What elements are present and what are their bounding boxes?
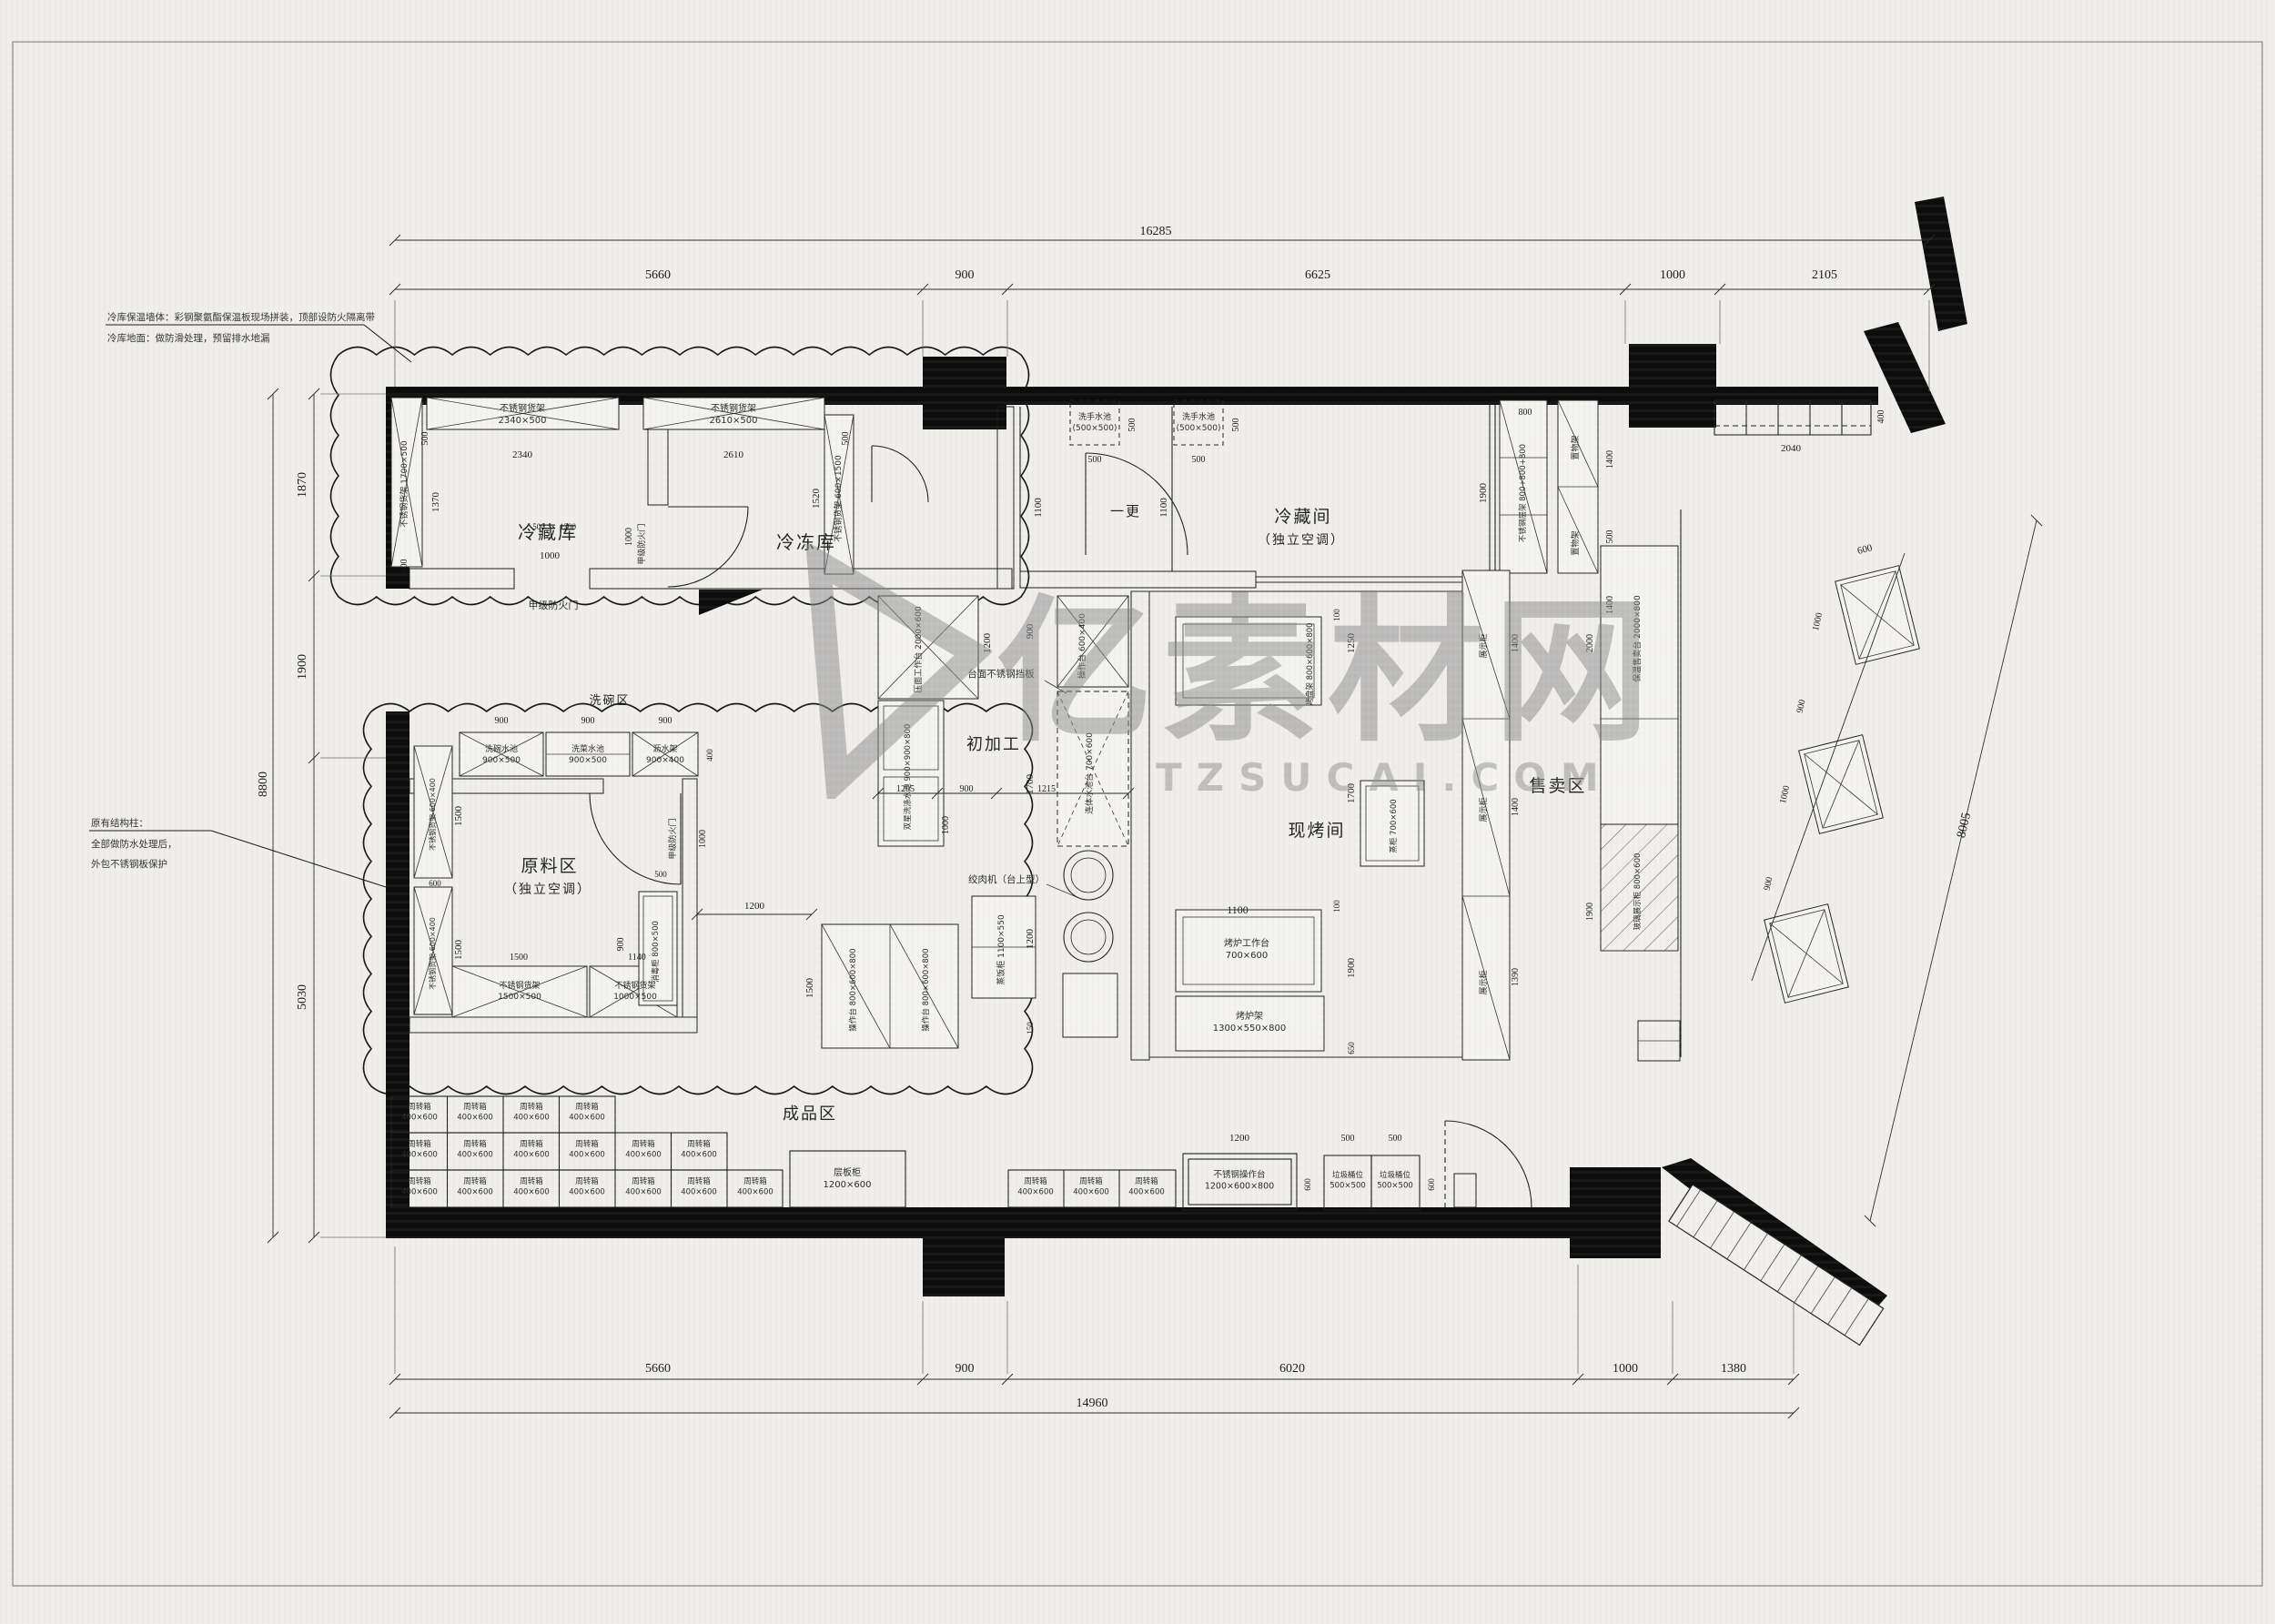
- dim-label: 2340: [512, 449, 533, 460]
- equipment-label: 置物架: [1570, 435, 1581, 459]
- dim-label: 900: [1763, 876, 1775, 892]
- dim-label: 8005: [1955, 812, 1974, 840]
- room-label: 初加工: [966, 735, 1021, 754]
- dim-label: 1400: [1605, 596, 1615, 614]
- column: [923, 1224, 1005, 1296]
- equipment-label: 周转箱400×600: [457, 1102, 493, 1123]
- dim-label: 1500: [804, 978, 815, 999]
- floor-plan-canvas: 1628556609006625100021055660900602010001…: [0, 0, 2275, 1624]
- room-label: 售卖区: [1529, 776, 1586, 796]
- dim-label: 1000: [1613, 1362, 1638, 1376]
- dim-label: 1700: [1025, 774, 1036, 795]
- dim-label: 500: [841, 432, 851, 446]
- room-label: 成品区: [783, 1105, 837, 1124]
- dim-label: 2040: [1781, 443, 1802, 454]
- dim-label: 400: [1876, 410, 1886, 424]
- dim-label: 600: [429, 879, 441, 888]
- equipment-label: 保温售卖台 2000×800: [1632, 595, 1643, 682]
- equipment-label: 洗手水池(500×500): [1177, 411, 1221, 433]
- dim-label: 900: [659, 716, 672, 726]
- equipment-label: 周转箱400×600: [1017, 1176, 1054, 1197]
- equipment-label: 甲级防火门: [529, 599, 579, 611]
- dim-label: 900: [960, 784, 974, 794]
- annotation-text: 外包不锈钢板保护: [91, 858, 167, 870]
- equipment-label: 层板柜1200×600: [824, 1166, 872, 1190]
- equipment-label: 烤盘架 800×600×800: [1305, 622, 1315, 705]
- equipment-label: 周转箱400×600: [457, 1139, 493, 1160]
- equipment-label: 压面工作台 2000×600: [913, 606, 924, 693]
- dim-label: 500: [420, 432, 430, 446]
- room-label: 冷藏间: [1274, 507, 1331, 527]
- dim-label: 500: [1088, 455, 1102, 465]
- dim-label: 1400: [1511, 798, 1521, 816]
- equipment-label: 周转箱400×600: [513, 1176, 550, 1197]
- dim-label: 900: [955, 268, 975, 282]
- dim-label: 650: [1347, 1042, 1356, 1054]
- dim-label: 1900: [1585, 903, 1595, 921]
- equipment-label: 周转箱400×600: [1073, 1176, 1109, 1197]
- equipment-label: 玻璃展示柜 800×600: [1633, 853, 1643, 931]
- dim-label: 1100: [1227, 903, 1249, 916]
- dim-label: 1000: [698, 830, 708, 848]
- dim-label: 1500: [453, 806, 464, 827]
- column: [1570, 1167, 1661, 1258]
- dim-label: 1390: [1511, 968, 1521, 986]
- column: [923, 357, 1006, 429]
- dim-label: 900: [616, 938, 626, 952]
- dim-label: 1000: [1660, 268, 1685, 282]
- equipment-label: 绞肉机（台上型）: [968, 873, 1045, 885]
- equipment-label: 不锈钢层架 800+800+800: [1518, 444, 1528, 542]
- dim-label: 600: [1303, 1178, 1312, 1191]
- dim-label: 1500: [510, 953, 528, 963]
- dim-label: 1000: [941, 816, 951, 834]
- equipment-label: 周转箱400×600: [513, 1139, 550, 1160]
- dim-label: 1200: [1229, 1133, 1250, 1144]
- column: [1629, 344, 1716, 428]
- equipment-label: 周转箱400×600: [625, 1176, 662, 1197]
- dim-label: 500: [1127, 419, 1137, 432]
- dim-label: 8800: [257, 772, 270, 797]
- equipment-label: 不锈钢货架 600×400: [428, 917, 437, 990]
- annotation-text: 冷库保温墙体：彩钢聚氨酯保温板现场拼装，顶部设防火隔离带: [107, 311, 375, 323]
- equipment-label: 消毒柜 800×500: [651, 921, 661, 983]
- dim-label: 1200: [744, 901, 765, 912]
- dim-label: 600: [1856, 542, 1874, 557]
- equipment-label: 垃圾桶位500×500: [1377, 1170, 1413, 1191]
- dim-label: 900: [1025, 623, 1036, 639]
- hand-wash-sinks: [1070, 400, 1223, 445]
- equipment-label: 蒸柜 700×600: [1389, 799, 1399, 852]
- equipment-label: 双星洗涤水池 900×900×800: [903, 724, 913, 831]
- room-label: 一更: [1110, 503, 1141, 519]
- dim-label: 1200: [1025, 929, 1036, 950]
- dim-label: 6020: [1279, 1362, 1305, 1376]
- equipment-label: 不锈钢操作台1200×600×800: [1205, 1169, 1274, 1192]
- dim-label: 1900: [296, 654, 309, 680]
- equipment-label: 洗手水池(500×500): [1073, 411, 1117, 433]
- dim-label: 1400: [1511, 634, 1521, 652]
- dim-label: 1380: [1721, 1362, 1746, 1376]
- room-label: 冷冻库: [776, 531, 836, 553]
- dim-label: 1520: [811, 489, 822, 509]
- storage-racks-top-right: [1500, 400, 1598, 573]
- equipment-label: 不锈钢货架 600×400: [428, 778, 437, 851]
- equipment-label: 操作台 600×400: [1077, 613, 1087, 679]
- equipment-label: 周转箱400×600: [625, 1139, 662, 1160]
- equipment-label: 周转箱400×600: [569, 1139, 605, 1160]
- annotation-text: 原有结构柱：: [91, 817, 148, 829]
- equipment-label: 周转箱400×600: [513, 1102, 550, 1123]
- room-label: 洗碗区: [589, 693, 630, 708]
- dim-label: 100: [1332, 609, 1341, 621]
- dim-label: 600: [399, 560, 409, 573]
- dim-label: 900: [1795, 699, 1808, 714]
- dim-label: 1000: [540, 550, 561, 561]
- equipment-label: 周转箱400×600: [681, 1139, 717, 1160]
- dim-label: 500: [1192, 455, 1206, 465]
- equipment-label: 不锈钢货架 1700×500: [399, 440, 409, 528]
- equipment-label: 展示柜: [1478, 797, 1489, 822]
- room-label: 原料区: [521, 856, 578, 876]
- dim-label: 1700: [1346, 783, 1357, 804]
- dim-label: 500: [1389, 1134, 1402, 1144]
- dim-label: 500: [1341, 1134, 1355, 1144]
- sheet-border: [13, 42, 2262, 1586]
- dim-label: 2000: [1585, 634, 1595, 652]
- equipment-label: 展示柜: [1478, 970, 1489, 994]
- dim-label: 1000: [1778, 784, 1792, 804]
- dim-label: 1200: [982, 633, 993, 654]
- dim-label: 5030: [296, 984, 309, 1010]
- dim-label: 1900: [1478, 483, 1489, 504]
- dim-label: 1200: [560, 522, 577, 531]
- dim-label: 1140: [628, 953, 646, 963]
- equipment-label: 周转箱400×600: [681, 1176, 717, 1197]
- equipment-label: 台面不锈钢挡板: [967, 668, 1035, 680]
- equipment-label: 展示柜: [1478, 633, 1489, 658]
- dim-label: 1900: [1346, 958, 1357, 979]
- dim-label: 1870: [296, 472, 309, 498]
- equipment-label: 周转箱400×600: [737, 1176, 773, 1197]
- dim-label: 1205: [896, 784, 915, 794]
- dim-label: 1100: [1158, 498, 1169, 518]
- equipment-label: 周转箱400×600: [569, 1176, 605, 1197]
- dim-label: 500: [1231, 419, 1241, 432]
- dim-label: 500: [532, 522, 545, 531]
- dim-label: 6625: [1305, 268, 1330, 282]
- angled-wall: [1915, 197, 1967, 331]
- dim-label: 1400: [1605, 450, 1615, 469]
- dim-label: 2105: [1812, 268, 1837, 282]
- annotation-text: 全部做防水处理后，: [91, 838, 177, 850]
- equipment-label: 垃圾桶位500×500: [1330, 1170, 1366, 1191]
- room-label: （独立空调）: [504, 883, 591, 897]
- equipment-label: 置物架: [1570, 530, 1581, 555]
- dim-label: 900: [955, 1362, 975, 1376]
- equipment-label: 不锈钢货架 600×1500: [833, 455, 844, 542]
- dim-label: 500: [1605, 530, 1615, 544]
- dim-label: 1000: [624, 528, 634, 546]
- annotation-text: 冷库地面：做防滑处理，预留排水地漏: [107, 332, 270, 344]
- dim-label: 800: [1519, 408, 1532, 418]
- dim-label: 1370: [430, 492, 441, 513]
- dim-label: 1500: [453, 940, 464, 961]
- dim-label: 14960: [1077, 1397, 1108, 1410]
- dim-label: 500: [654, 870, 667, 879]
- room-label: 现烤间: [1288, 821, 1345, 841]
- dim-label: 400: [705, 749, 714, 762]
- dim-label: 900: [495, 716, 509, 726]
- dim-label: 100: [1332, 900, 1341, 913]
- dim-label: 1250: [1346, 633, 1357, 654]
- cad-floor-plan-drawing: 1628556609006625100021055660900602010001…: [0, 0, 2275, 1624]
- equipment-label: 甲级防火门: [667, 818, 678, 859]
- equipment-label: 周转箱400×600: [457, 1176, 493, 1197]
- equipment-label: 甲级防火门: [636, 523, 647, 564]
- equipment-label: 周转箱400×600: [1128, 1176, 1165, 1197]
- equipment-label: 操作台 800×600×800: [848, 948, 858, 1031]
- door-threshold: [699, 590, 763, 615]
- dim-label: 5660: [645, 1362, 671, 1376]
- equipment-label: 周转箱400×600: [569, 1102, 605, 1123]
- dim-label: 1000: [1811, 611, 1825, 631]
- equipment-label: 蒸饭柜 1100×550: [996, 914, 1006, 985]
- dim-label: 16285: [1140, 225, 1172, 238]
- equipment-label: 连体水池台 700×600: [1084, 732, 1095, 814]
- dim-label: 5660: [645, 268, 671, 282]
- room-label: （独立空调）: [1258, 533, 1345, 548]
- dim-label: 1100: [1033, 498, 1044, 518]
- dim-label: 1215: [1037, 784, 1056, 794]
- dim-label: 2610: [723, 449, 744, 460]
- equipment-label: 操作台 800×600×800: [921, 948, 931, 1031]
- dim-label: 600: [1427, 1178, 1436, 1191]
- sales-display-cabinets: [1462, 546, 1680, 1061]
- dim-label: 900: [581, 716, 595, 726]
- dim-label: 150: [1026, 1022, 1035, 1034]
